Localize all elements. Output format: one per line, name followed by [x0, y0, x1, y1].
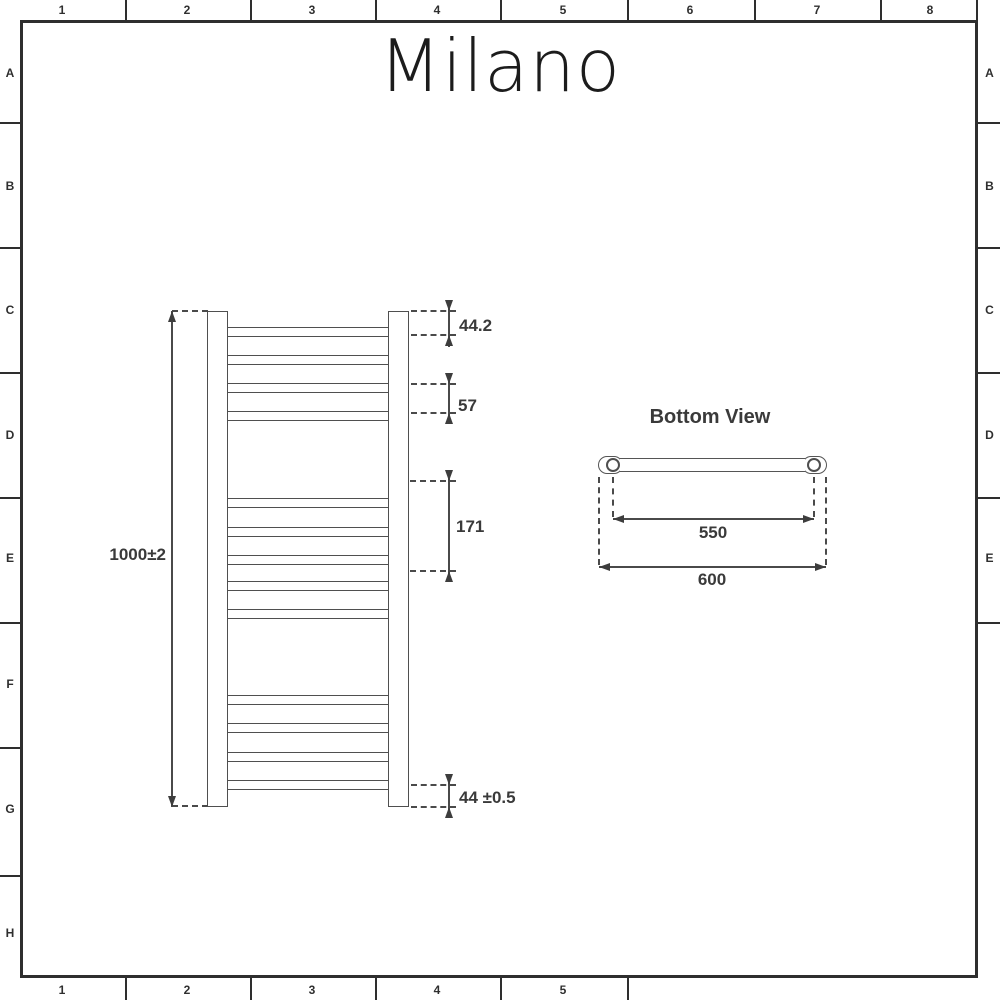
ruler-tick: [627, 978, 629, 1000]
milano-logo: Milano: [250, 26, 750, 106]
ruler-tick: [627, 0, 629, 20]
ruler-label-left: H: [0, 925, 20, 941]
dim-overall-width: 600: [662, 571, 762, 588]
ruler-tick: [0, 497, 20, 499]
ruler-label-right: D: [979, 427, 1000, 443]
dim-top-rail-offset: 44.2: [459, 317, 492, 334]
extension-line: [825, 477, 827, 565]
left-inlet-circle: [606, 458, 620, 472]
dimension-line-height: [171, 311, 173, 807]
ruler-tick: [978, 622, 1000, 624]
ruler-label-left: B: [0, 178, 20, 194]
ruler-label-left: G: [0, 801, 20, 817]
ruler-tick: [0, 747, 20, 749]
ruler-tick: [880, 0, 882, 20]
ruler-label-top: 1: [47, 2, 77, 18]
ruler-label-right: A: [979, 65, 1000, 81]
ruler-label-top: 6: [675, 2, 705, 18]
ruler-label-bottom: 1: [47, 982, 77, 998]
ruler-tick: [250, 978, 252, 1000]
ruler-tick: [375, 978, 377, 1000]
ruler-tick: [125, 978, 127, 1000]
arrowhead-up-icon: [445, 335, 453, 346]
rung: [227, 498, 389, 508]
ruler-tick: [0, 372, 20, 374]
ruler-label-top: 7: [802, 2, 832, 18]
ruler-label-bottom: 3: [297, 982, 327, 998]
ruler-tick: [978, 372, 1000, 374]
ruler-label-top: 2: [172, 2, 202, 18]
ruler-label-left: D: [0, 427, 20, 443]
rung: [227, 327, 389, 337]
rung: [227, 411, 389, 421]
drawing-sheet: 1 2 3 4 5 6 7 8 1 2 3 4 5 A B C D E F G …: [0, 0, 1000, 1000]
right-inlet-circle: [807, 458, 821, 472]
ruler-label-left: C: [0, 302, 20, 318]
arrowhead-right-icon: [815, 563, 826, 571]
extension-line: [813, 477, 815, 517]
dimension-line-pipe-centres: [613, 518, 814, 520]
ruler-tick: [500, 978, 502, 1000]
ruler-label-right: B: [979, 178, 1000, 194]
drawing-frame: [20, 20, 978, 978]
arrowhead-down-icon: [445, 300, 453, 311]
radiator-right-upright: [388, 311, 409, 807]
bottom-view-title: Bottom View: [610, 406, 810, 428]
ruler-tick: [250, 0, 252, 20]
ruler-label-bottom: 5: [548, 982, 578, 998]
ruler-tick: [125, 0, 127, 20]
extension-line: [612, 477, 614, 517]
ruler-label-right: E: [979, 550, 1000, 566]
ruler-tick: [0, 247, 20, 249]
extension-line: [598, 477, 600, 565]
ruler-label-right: C: [979, 302, 1000, 318]
ruler-label-top: 4: [422, 2, 452, 18]
ruler-tick: [0, 622, 20, 624]
rung: [227, 723, 389, 733]
ruler-label-top: 5: [548, 2, 578, 18]
arrowhead-down-icon: [445, 774, 453, 785]
rung: [227, 752, 389, 762]
extension-line: [172, 805, 208, 807]
dim-rail-gap: 171: [456, 518, 484, 535]
arrowhead-up-icon: [445, 571, 453, 582]
ruler-tick: [375, 0, 377, 20]
rung: [227, 527, 389, 537]
ruler-tick: [978, 497, 1000, 499]
ruler-label-top: 3: [297, 2, 327, 18]
ruler-label-bottom: 2: [172, 982, 202, 998]
rung: [227, 609, 389, 619]
ruler-tick: [0, 875, 20, 877]
radiator-left-upright: [207, 311, 228, 807]
ruler-label-top: 8: [915, 2, 945, 18]
dimension-line-overall-width: [599, 566, 826, 568]
rung: [227, 355, 389, 365]
dim-pipe-centres: 550: [663, 524, 763, 541]
arrowhead-down-icon: [445, 373, 453, 384]
ruler-label-left: E: [0, 550, 20, 566]
dim-bottom-rail-offset: 44 ±0.5: [459, 789, 516, 806]
dim-overall-height: 1000±2: [88, 546, 166, 563]
dim-rail-pitch: 57: [458, 397, 477, 414]
bottom-view-body: [620, 458, 805, 472]
rung: [227, 555, 389, 565]
ruler-label-bottom: 4: [422, 982, 452, 998]
arrowhead-up-icon: [445, 807, 453, 818]
ruler-tick: [500, 0, 502, 20]
ruler-tick: [976, 0, 978, 20]
arrowhead-left-icon: [599, 563, 610, 571]
arrowhead-down-icon: [168, 796, 176, 807]
extension-line: [172, 310, 208, 312]
arrowhead-up-icon: [168, 311, 176, 322]
rung: [227, 383, 389, 393]
rung: [227, 780, 389, 790]
ruler-tick: [0, 122, 20, 124]
ruler-tick: [978, 122, 1000, 124]
ruler-tick: [978, 247, 1000, 249]
ruler-label-left: A: [0, 65, 20, 81]
rung: [227, 695, 389, 705]
dimension-line-rail-gap: [448, 474, 450, 578]
arrowhead-left-icon: [613, 515, 624, 523]
rung: [227, 581, 389, 591]
arrowhead-down-icon: [445, 470, 453, 481]
arrowhead-right-icon: [803, 515, 814, 523]
ruler-tick: [754, 0, 756, 20]
ruler-label-left: F: [0, 676, 20, 692]
arrowhead-up-icon: [445, 413, 453, 424]
